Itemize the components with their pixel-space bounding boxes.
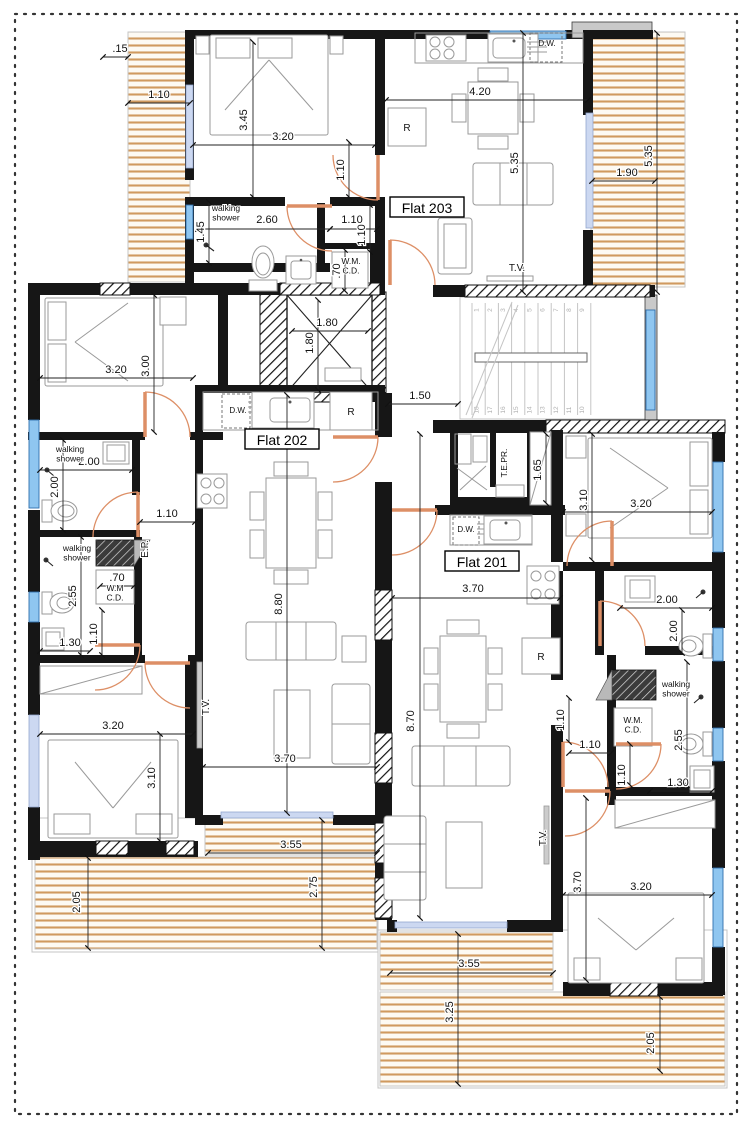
shower-head-201a [696, 590, 706, 599]
dimension-label: 2.55 [67, 585, 79, 606]
door-203-entry [390, 240, 435, 285]
bed-201-top [566, 436, 712, 538]
shower-head-202b [44, 558, 54, 567]
sofa-202 [246, 622, 336, 660]
loveseat-202 [332, 684, 370, 764]
dimension-label: 1.10 [156, 508, 177, 520]
dimension-label: 1.80 [304, 332, 316, 353]
dimension-label: 2.00 [668, 620, 680, 641]
dimension-label: 3.00 [140, 355, 152, 376]
dimension-label: .15 [112, 43, 127, 55]
stair-step-number: 8 [566, 308, 573, 312]
sink-202 [252, 392, 314, 428]
stair-step-number: 15 [513, 406, 520, 414]
dimension-label: 3.20 [630, 498, 651, 510]
elevator-machine [325, 368, 361, 381]
stair-step-number: 10 [579, 406, 586, 414]
stair-step-number: 16 [500, 406, 507, 414]
dimension-label: 1.80 [316, 317, 337, 329]
dimension-label: 2.55 [673, 729, 685, 750]
dimension-label: 1.10 [555, 709, 567, 730]
toilet-202a [42, 500, 77, 522]
shower-head-202a [45, 468, 55, 477]
ep-door-201 [596, 670, 612, 700]
dimension-label: 1.10 [335, 159, 347, 180]
coffee-table-202 [274, 690, 310, 758]
dimension-label: 2.00 [49, 476, 61, 497]
toilet-203 [249, 246, 277, 291]
dimension-label: 1.65 [532, 459, 544, 480]
label-fridge-203: R [403, 123, 410, 134]
window-203-bedroom [186, 85, 193, 168]
dimension-label: 1.50 [409, 390, 430, 402]
wardrobe-201 [615, 800, 715, 828]
label-flat-201: Flat 201 [457, 554, 508, 570]
label-wm-cd-201: W.M.C.D. [623, 715, 642, 735]
tepr-shaft [455, 434, 524, 497]
dimension-label: 5.35 [643, 145, 655, 166]
dimension-label: 2.00 [656, 594, 677, 606]
dimension-label: 3.55 [458, 958, 479, 970]
label-walking-shower-203: walkingshower [211, 203, 241, 223]
door-201-bedroom2 [565, 791, 610, 836]
sink-201 [484, 516, 532, 544]
balcony-203-right [591, 32, 685, 287]
dimension-label: 3.55 [280, 839, 301, 851]
basin-203 [286, 256, 316, 284]
stair-step-number: 12 [553, 406, 560, 414]
stair-step-number: 17 [487, 406, 494, 414]
label-fridge-201: R [537, 652, 544, 663]
dimension-label: 3.70 [462, 583, 483, 595]
window-202-bedroom1 [29, 420, 39, 508]
dimension-label: 1.10 [356, 224, 368, 245]
label-dw-202: D.W. [229, 406, 246, 415]
dimension-label: 1.45 [195, 221, 207, 242]
dimension-label: 3.70 [572, 871, 584, 892]
stair-step-number: 5 [526, 308, 533, 312]
label-tv-202: T.V. [201, 699, 212, 715]
slider-202-balcony [221, 812, 333, 818]
dining-203 [452, 68, 534, 149]
dining-201 [424, 620, 502, 738]
dimension-label: 1.10 [148, 89, 169, 101]
dimension-label: 3.45 [238, 109, 250, 130]
floor-plan-page: 123456789181716151413121110 [0, 0, 751, 1128]
label-tepr: T.E.PR. [499, 449, 509, 478]
basin-201b [690, 766, 714, 792]
dimension-label: 1.10 [341, 214, 362, 226]
window-201-bathB [713, 728, 723, 761]
dimension-label: 3.20 [105, 364, 126, 376]
label-walking-shower-202a: walkingshower [55, 444, 85, 464]
coffee-table-201 [446, 822, 482, 888]
bathA-201 [625, 576, 712, 658]
door-202-bedroom2 [145, 663, 190, 708]
ep-cabinet-201 [612, 670, 656, 700]
stair-step-number: 13 [540, 406, 547, 414]
dimension-label: 1.30 [667, 777, 688, 789]
dimension-label: 3.10 [146, 767, 158, 788]
toilet-201a [679, 634, 712, 658]
window-201-bedroom1 [713, 462, 723, 552]
sofa-201-h [412, 746, 510, 786]
window-202-bath [29, 592, 39, 622]
stair-step-number: 7 [553, 308, 560, 312]
stair-step-number: 2 [487, 308, 494, 312]
dimension-label: 8.70 [405, 710, 417, 731]
dimension-label: 1.30 [59, 637, 80, 649]
label-flat-202: Flat 202 [257, 432, 308, 448]
hob-203 [426, 35, 466, 61]
stair-step-number: 6 [540, 308, 547, 312]
balcony-203-left [128, 32, 190, 282]
side-table-202 [342, 636, 366, 662]
label-flat-203: Flat 203 [402, 200, 453, 216]
door-202-bedroom1 [145, 392, 190, 437]
stair-step-number: 11 [566, 406, 573, 413]
dimension-label: 3.25 [444, 1001, 456, 1022]
window-203-shower [186, 205, 193, 239]
dimension-label: 3.20 [630, 881, 651, 893]
window-201-bathA [713, 628, 723, 661]
dimension-label: 3.20 [102, 720, 123, 732]
stair-step-number: 9 [579, 308, 586, 312]
dimension-label: 3.10 [578, 489, 590, 510]
bed-201-bottom [568, 893, 704, 983]
dimension-label: 5.35 [509, 152, 521, 173]
tv-203 [487, 276, 533, 281]
ep-cabinet-202 [96, 540, 134, 566]
bed-202-bottom [48, 740, 178, 838]
dimension-label: 2.60 [256, 214, 277, 226]
stairwell-window [646, 310, 655, 410]
label-walking-shower-202b: walkingshower [62, 543, 92, 563]
stair-handrail [475, 353, 587, 362]
slider-201-balcony [395, 922, 507, 928]
dimension-label: 3.70 [274, 753, 295, 765]
label-ep: E.P. [140, 540, 151, 558]
dimension-label: 4.20 [469, 86, 490, 98]
dimension-label: 1.10 [88, 623, 100, 644]
stair-step-number: 14 [526, 406, 533, 414]
armchair-203 [438, 218, 472, 274]
label-tv-203: T.V. [509, 263, 525, 274]
slider-203-balcony [586, 113, 593, 228]
label-wm-cd-203: W.M.C.D. [341, 256, 360, 276]
dimension-label: 2.75 [308, 876, 320, 897]
label-dw-201: D.W. [457, 525, 474, 534]
label-dw-203: D.W. [538, 39, 555, 48]
window-202-bedroom2 [29, 715, 39, 807]
dimension-label: 1.90 [616, 167, 637, 179]
floor-plan-svg: 123456789181716151413121110 [0, 0, 751, 1128]
dining-202 [250, 462, 332, 584]
staircase: 123456789181716151413121110 [460, 295, 657, 420]
dimension-label: 3.20 [272, 131, 293, 143]
dimension-label: 1.10 [616, 764, 628, 785]
label-walking-shower-201: walkingshower [661, 679, 691, 699]
label-tv-201: T.V. [538, 830, 549, 846]
stair-step-number: 1 [474, 308, 481, 312]
window-201-bedroom2 [713, 868, 723, 947]
hob-202 [197, 474, 227, 508]
dimension-label: 2.05 [645, 1032, 657, 1053]
shower-head-201b [694, 695, 704, 704]
door-201-entry [392, 510, 437, 555]
wardrobe-202 [40, 666, 142, 694]
label-fridge-202: R [347, 407, 354, 418]
dimension-label: 2.05 [71, 891, 83, 912]
dimension-label: 1.10 [579, 739, 600, 751]
basin-201a [625, 576, 655, 602]
label-wm-cd-202: W.MC.D. [107, 583, 124, 603]
stair-step-number: 3 [500, 308, 507, 312]
bed-203 [196, 35, 343, 135]
dimension-label: 8.80 [273, 593, 285, 614]
door-202-entry [333, 437, 378, 482]
